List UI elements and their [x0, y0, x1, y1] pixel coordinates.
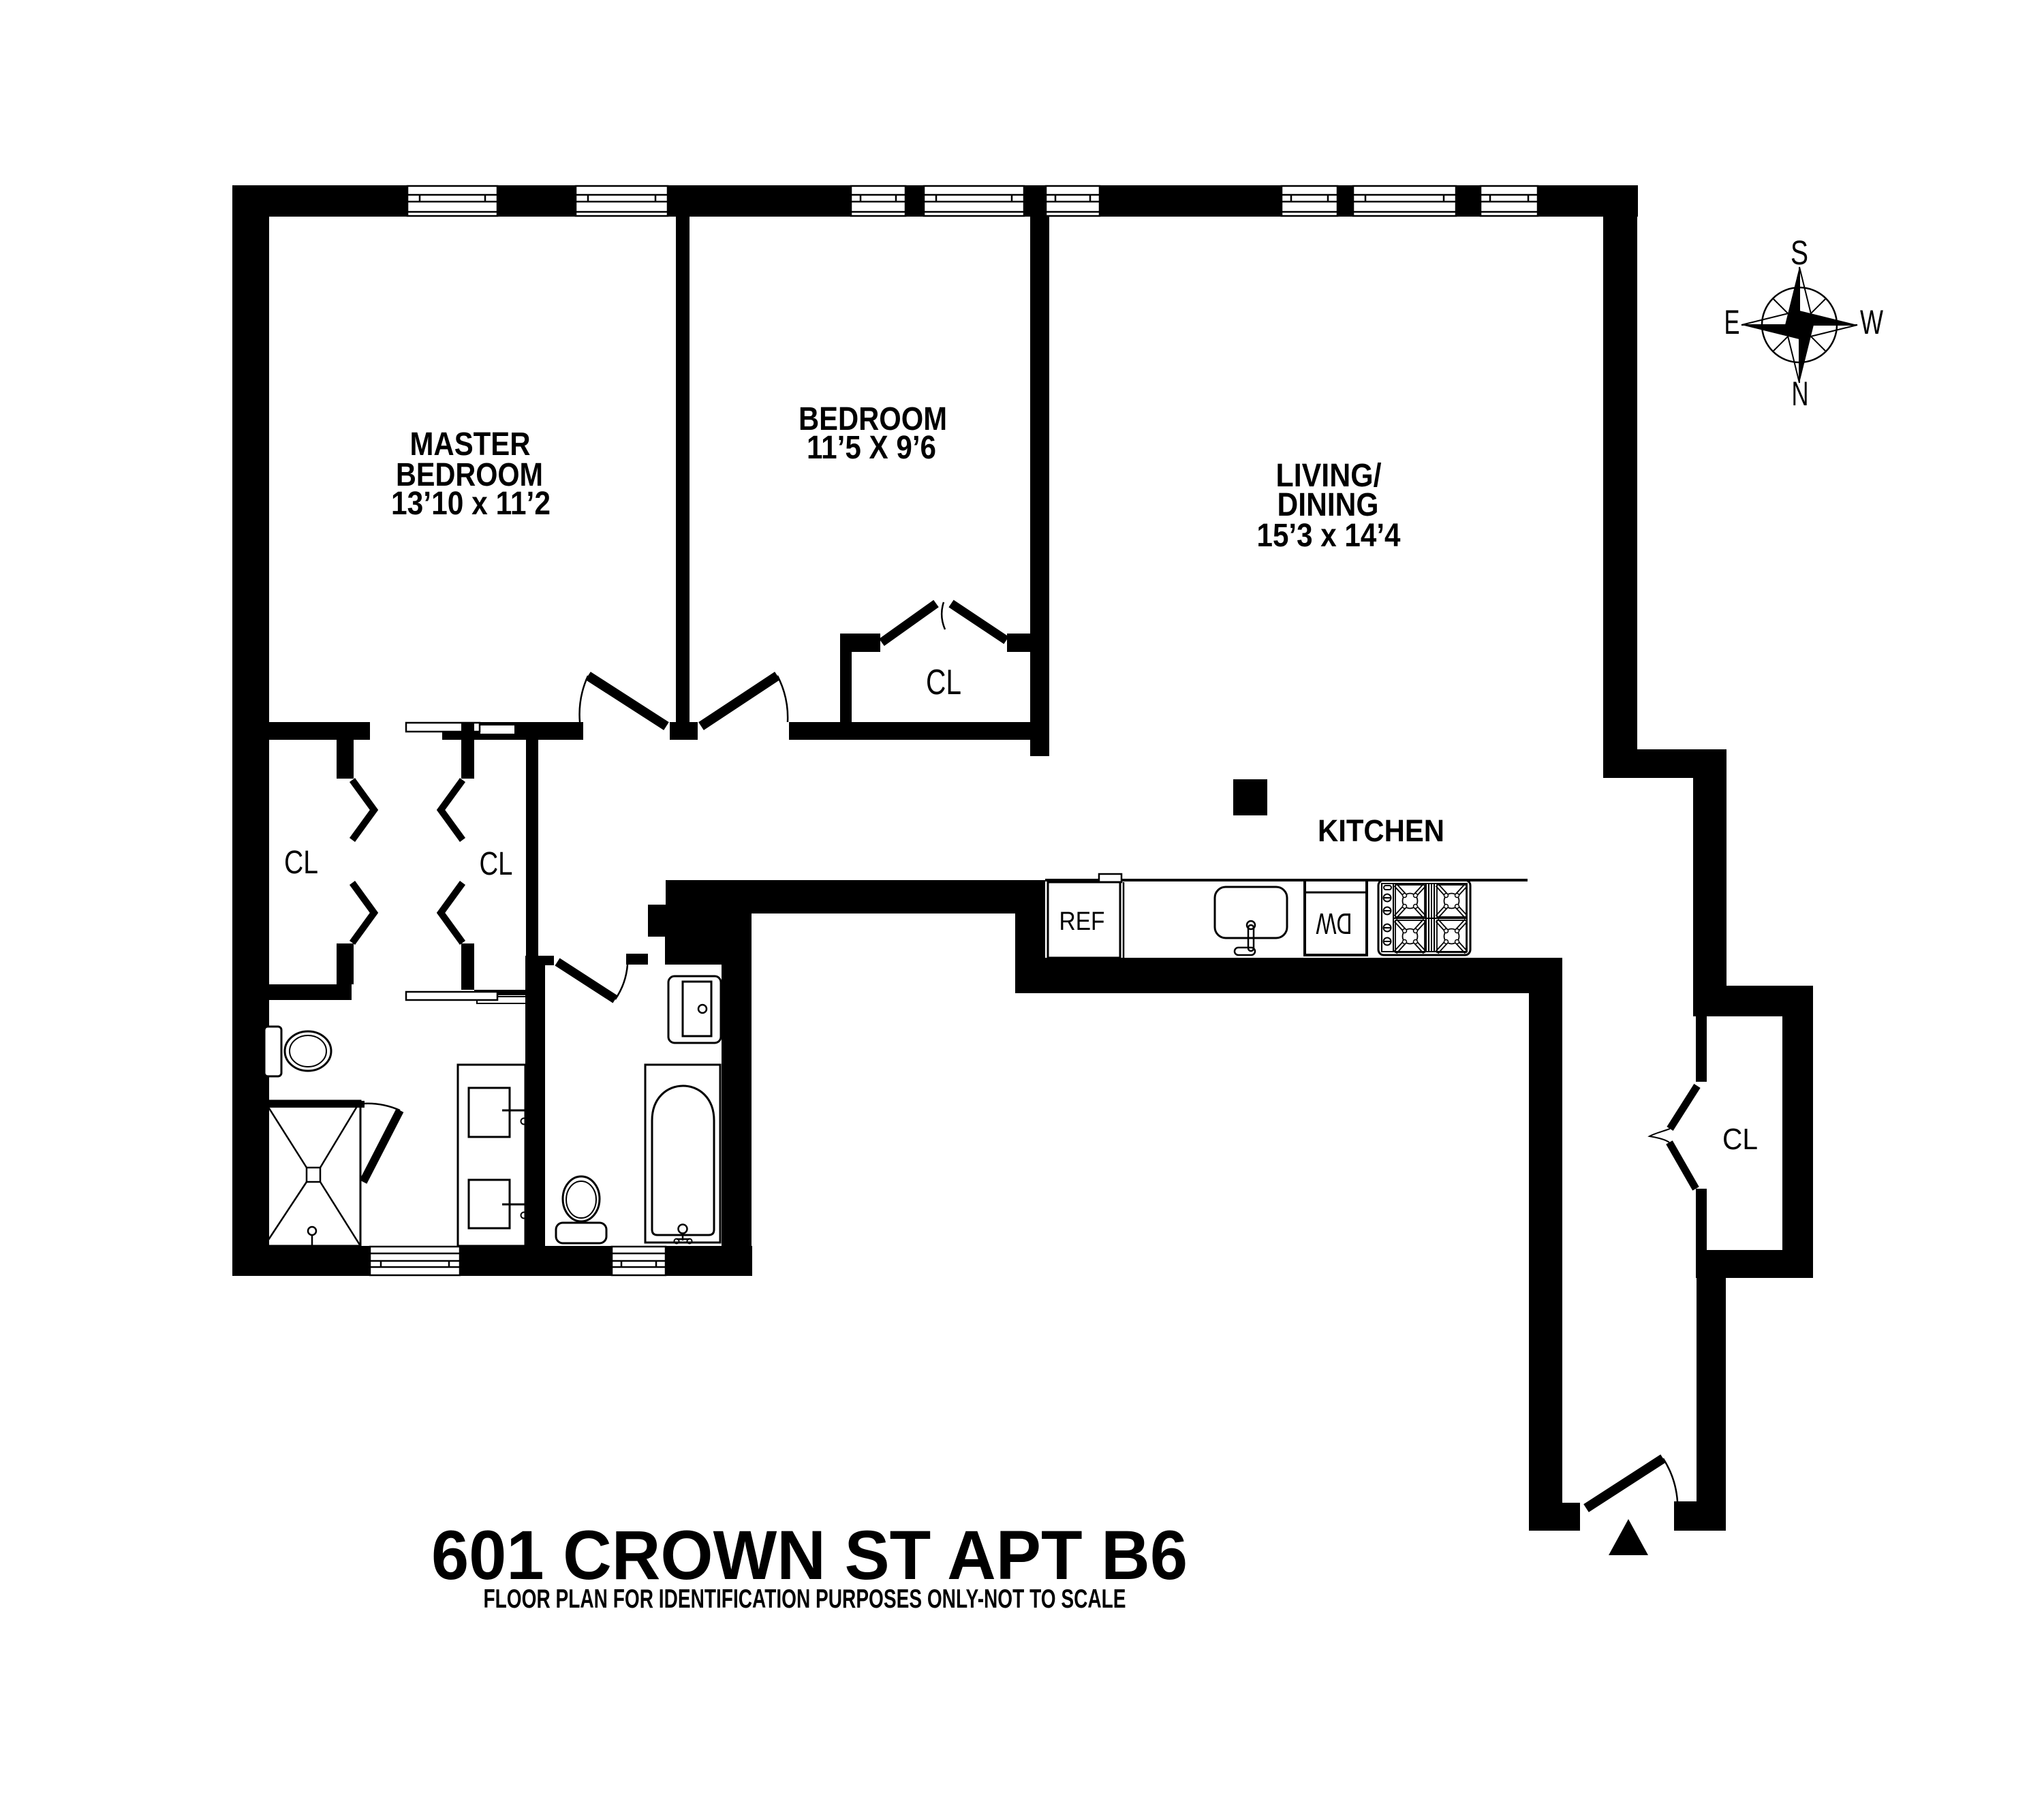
svg-text:13’10 x 11’2: 13’10 x 11’2 [391, 486, 551, 522]
svg-text:601 CROWN ST APT B6: 601 CROWN ST APT B6 [431, 1516, 1188, 1594]
svg-text:KITCHEN: KITCHEN [1318, 813, 1444, 848]
svg-text:CL: CL [284, 845, 318, 881]
svg-text:REF: REF [1059, 907, 1105, 936]
svg-text:N: N [1792, 375, 1809, 413]
svg-text:CL: CL [480, 846, 513, 882]
svg-text:CL: CL [1722, 1123, 1758, 1156]
svg-text:FLOOR PLAN FOR IDENTIFICATION: FLOOR PLAN FOR IDENTIFICATION PURPOSES O… [484, 1584, 1126, 1614]
svg-text:S: S [1791, 234, 1808, 272]
svg-text:11’5 X 9’6: 11’5 X 9’6 [807, 430, 936, 466]
svg-text:DW: DW [1316, 907, 1352, 940]
svg-text:CL: CL [926, 663, 961, 702]
svg-text:W: W [1860, 303, 1884, 341]
svg-text:15’3 x 14’4: 15’3 x 14’4 [1257, 518, 1401, 554]
svg-text:E: E [1724, 303, 1740, 341]
